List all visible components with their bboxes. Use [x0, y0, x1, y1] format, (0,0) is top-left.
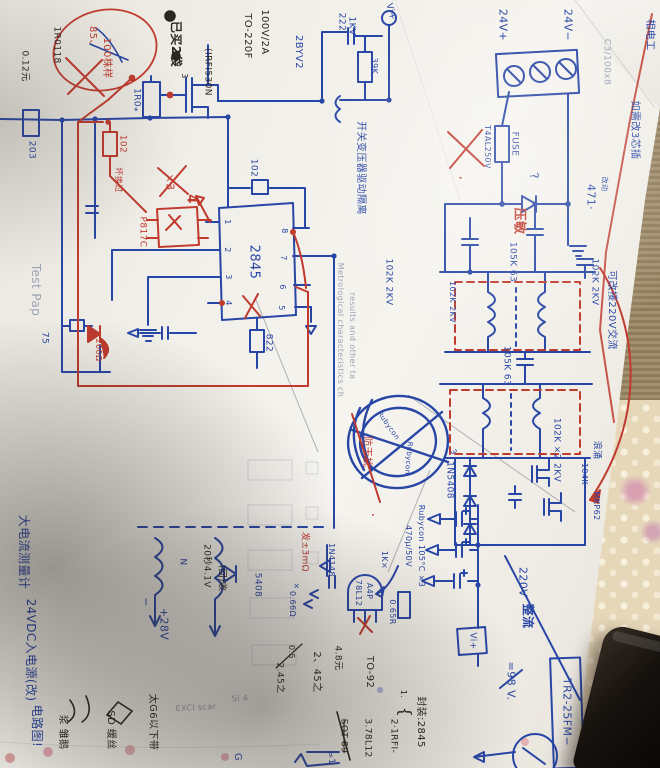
- handwritten-label: 3: [224, 274, 232, 280]
- handwritten-label: 102K 2KV: [590, 259, 599, 306]
- handwritten-label: 1KV: [347, 17, 356, 36]
- handwritten-label: 102: [118, 135, 127, 153]
- handwritten-label: 1R0⁎: [132, 88, 141, 112]
- handwritten-label: 0.12元: [20, 50, 29, 81]
- handwritten-label: 改动: [601, 177, 608, 192]
- handwritten-label: EXCI scar: [175, 703, 216, 713]
- handwritten-label: 已买2袋: [170, 21, 182, 67]
- handwritten-label: 75: [40, 332, 49, 344]
- handwritten-label: 85、: [87, 26, 97, 50]
- handwritten-label: 整流: [522, 604, 534, 629]
- photo-of-hand-drawn-schematic: 24V+24V−FUSET4AL250V?压敏471·改动相电工如需改3芯插可改…: [0, 0, 660, 768]
- handwritten-label: 78L12: [354, 580, 362, 607]
- handwritten-label: 24V−: [563, 9, 574, 41]
- handwritten-label: Vi+: [468, 632, 477, 649]
- handwritten-label: 100株样: [101, 37, 111, 78]
- handwritten-label: 104K: [580, 463, 588, 485]
- handwritten-label: 2: [223, 247, 231, 253]
- handwritten-label: 3: [180, 73, 188, 79]
- handwritten-label: 大电流测量计: [18, 515, 30, 589]
- handwritten-label: 0.65R: [388, 599, 396, 624]
- handwritten-label: 105K 63: [508, 242, 517, 282]
- handwritten-label: 105K 63: [502, 346, 511, 386]
- handwritten-label: 2.45之: [275, 662, 284, 693]
- handwritten-label: 如需改3芯插: [629, 101, 639, 160]
- handwritten-label: SD 缓丝: [105, 710, 115, 749]
- handwritten-label: N: [178, 558, 187, 565]
- handwritten-label: ×: [292, 582, 300, 589]
- handwritten-label: T4AL250V: [483, 125, 491, 169]
- handwritten-label: 1N5408: [445, 461, 454, 499]
- handwritten-label: ?: [528, 172, 541, 181]
- handwritten-label: 220V: [518, 567, 529, 597]
- handwritten-labels-layer: 24V+24V−FUSET4AL250V?压敏471·改动相电工如需改3芯插可改…: [0, 0, 660, 768]
- handwritten-label: C3/100x8: [602, 39, 611, 85]
- handwritten-label: 102K ×2 2KV: [552, 418, 561, 482]
- handwritten-label: 203: [27, 141, 36, 159]
- handwritten-label: Rubycon: [376, 410, 401, 441]
- handwritten-label: Test Pap: [30, 264, 42, 316]
- handwritten-label: 0.5: [287, 645, 295, 659]
- handwritten-label: 浆 雏鹅: [57, 715, 67, 750]
- handwritten-label: 4.8元: [333, 646, 342, 671]
- handwritten-label: 1R0118: [52, 26, 61, 63]
- handwritten-label: 封装:2845: [415, 696, 425, 748]
- handwritten-label: 8: [280, 228, 288, 234]
- handwritten-label: 222: [337, 13, 346, 31]
- handwritten-label: 20秒4.1V: [202, 544, 211, 588]
- handwritten-label: G: [232, 753, 242, 761]
- handwritten-label: −: [141, 597, 152, 607]
- handwritten-label: +28V: [159, 608, 170, 640]
- handwritten-label: 102: [249, 159, 258, 177]
- handwritten-label: 发±3mΩ: [300, 532, 309, 572]
- handwritten-label: results and other ta: [348, 293, 356, 380]
- handwritten-label: 471·: [586, 184, 597, 210]
- handwritten-label: FUSE: [510, 132, 519, 157]
- handwritten-label: ×3: [165, 173, 176, 190]
- handwritten-label: ·: [365, 513, 379, 518]
- handwritten-label: 2·1RFI-: [389, 719, 398, 753]
- handwritten-label: 1K×: [380, 551, 388, 569]
- handwritten-label: 24V+: [498, 9, 509, 41]
- handwritten-label: 可改接220V交流: [606, 270, 616, 350]
- handwritten-label: =1: [324, 750, 335, 765]
- handwritten-label: 470μ/50V: [404, 525, 412, 567]
- handwritten-label: 6: [278, 284, 286, 290]
- handwritten-label: 24VDC入电源(改): [25, 599, 37, 702]
- handwritten-label: 防干扰: [361, 436, 371, 467]
- handwritten-label: TO-92: [364, 656, 374, 689]
- handwritten-label: 1.: [399, 690, 407, 698]
- handwritten-label: Metrological characteristics ch: [336, 263, 344, 398]
- handwritten-label: (回)收: [217, 565, 226, 592]
- handwritten-label: 压敏: [513, 208, 526, 235]
- handwritten-label: 7: [279, 255, 287, 261]
- handwritten-label: 5408: [253, 573, 262, 598]
- handwritten-label: 2845: [248, 245, 261, 280]
- handwritten-label: Rubycon: [403, 441, 413, 474]
- handwritten-label: 4: [224, 300, 232, 306]
- handwritten-label: 39K: [370, 58, 378, 75]
- handwritten-label: 相电工: [644, 19, 654, 50]
- handwritten-label: MKP62: [592, 491, 600, 520]
- handwritten-label: 0.66Ω: [288, 591, 296, 617]
- handwritten-label: 2BYV2: [293, 35, 303, 69]
- handwritten-label: Rubycon 105°C ×3: [417, 505, 425, 588]
- handwritten-label: 3: [448, 448, 457, 456]
- handwritten-label: 4: [185, 194, 198, 203]
- handwritten-label: =98 V.: [506, 662, 517, 701]
- handwritten-label: P817C: [138, 217, 147, 248]
- handwritten-label: (IRFI530N: [203, 48, 212, 96]
- handwritten-label: A4P: [365, 583, 373, 600]
- handwritten-label: 1: [223, 219, 231, 225]
- handwritten-label: 200Ω: [94, 339, 102, 362]
- handwritten-label: 1N4148: [327, 543, 335, 577]
- handwritten-label: TR2-25FM−: [562, 678, 573, 746]
- handwritten-label: 坏换过: [114, 167, 122, 192]
- handwritten-label: Si 4: [232, 695, 249, 704]
- handwritten-label: 100V/2A: [259, 9, 269, 54]
- handwritten-label: TO-220F: [242, 13, 252, 59]
- handwritten-label: 5: [277, 305, 285, 311]
- handwritten-label: 开关变压器驱动隔离: [355, 121, 365, 215]
- handwritten-label: 3.78L12: [363, 718, 372, 757]
- handwritten-label: {: [397, 707, 413, 718]
- handwritten-label: ·: [452, 175, 468, 181]
- handwritten-label: 102K 2KV: [448, 281, 456, 323]
- handwritten-label: 浪涌: [592, 441, 601, 460]
- handwritten-label: Vi+: [383, 3, 396, 22]
- handwritten-label: 太G6以下带: [147, 694, 157, 751]
- handwritten-label: 2、45之: [311, 651, 321, 692]
- handwritten-label: 102K 2KV: [384, 259, 393, 306]
- handwritten-label: 822: [264, 334, 273, 352]
- handwritten-label: SOT-89: [339, 719, 348, 754]
- handwritten-label: 电路图!: [31, 705, 43, 747]
